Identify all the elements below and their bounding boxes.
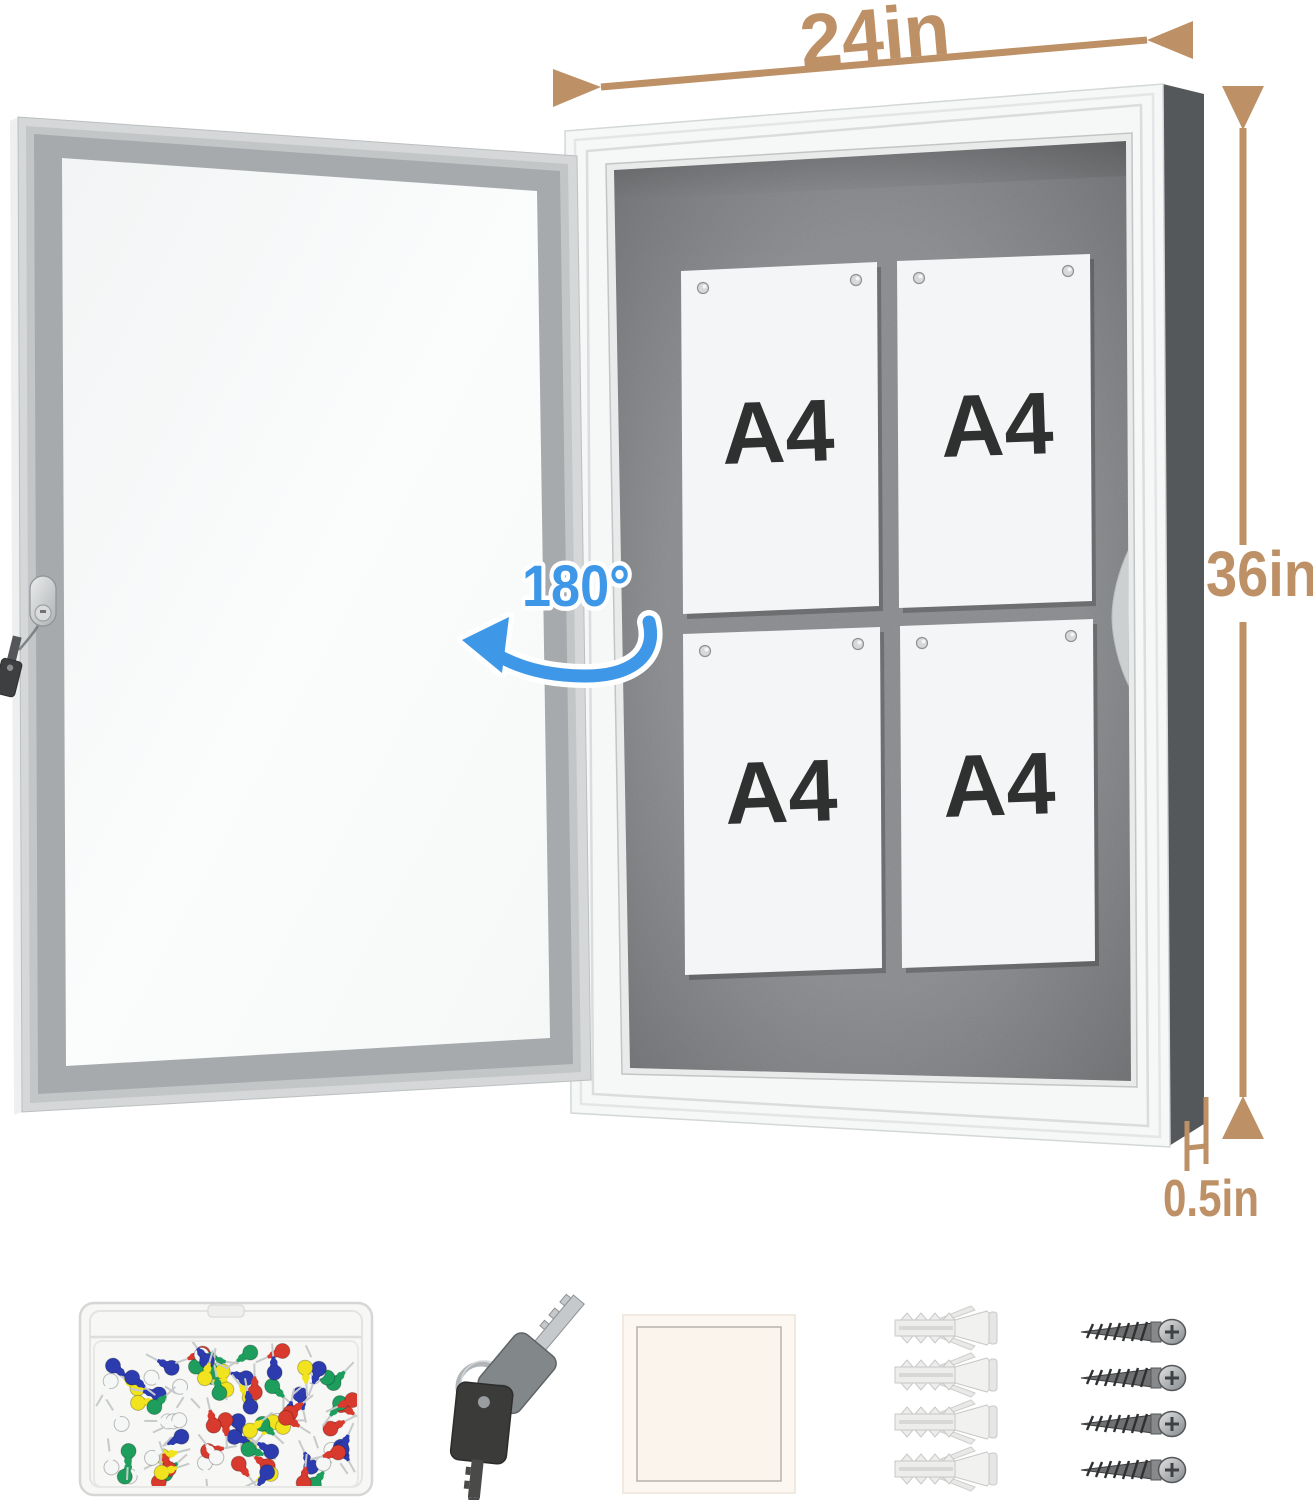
height-dimension: 36in (1206, 86, 1313, 1139)
depth-label: 0.5in (1163, 1170, 1259, 1228)
screw (1081, 1458, 1186, 1483)
wall-anchor (895, 1353, 997, 1397)
push-pin (917, 638, 928, 649)
a4-paper: A4 (681, 262, 883, 619)
a4-paper: A4 (683, 627, 886, 980)
accessories-row (80, 1283, 1186, 1500)
screw (1081, 1320, 1186, 1345)
a4-paper: A4 (897, 254, 1096, 613)
push-pin (851, 275, 862, 286)
adhesive-pad (623, 1315, 795, 1493)
screws (1081, 1320, 1186, 1483)
screw (1081, 1366, 1186, 1391)
box-latch (208, 1305, 244, 1317)
height-label: 36in (1206, 538, 1313, 610)
bulletin-board: A4 A4 (565, 84, 1204, 1147)
paper-label: A4 (723, 740, 839, 843)
product-image: A4 A4 (0, 0, 1313, 1500)
door-glass (62, 158, 550, 1066)
push-pin (698, 283, 709, 294)
wall-anchor (895, 1447, 997, 1491)
push-pin (1066, 631, 1077, 642)
a4-paper: A4 (900, 619, 1099, 973)
paper-label: A4 (939, 373, 1055, 476)
wall-anchor (895, 1400, 997, 1444)
push-pin (700, 646, 711, 657)
wall-anchor (895, 1306, 997, 1350)
key (445, 1381, 514, 1500)
push-pin (914, 273, 925, 284)
keys (445, 1283, 599, 1500)
push-pin (1063, 266, 1074, 277)
paper-label: A4 (941, 733, 1057, 836)
swing-angle-label: 180° (522, 554, 630, 619)
push-pins-box (80, 1303, 372, 1500)
wall-anchors (895, 1306, 997, 1491)
width-label: 24in (796, 0, 953, 82)
push-pin (853, 639, 864, 650)
paper-label: A4 (720, 380, 836, 483)
screw (1081, 1412, 1186, 1437)
